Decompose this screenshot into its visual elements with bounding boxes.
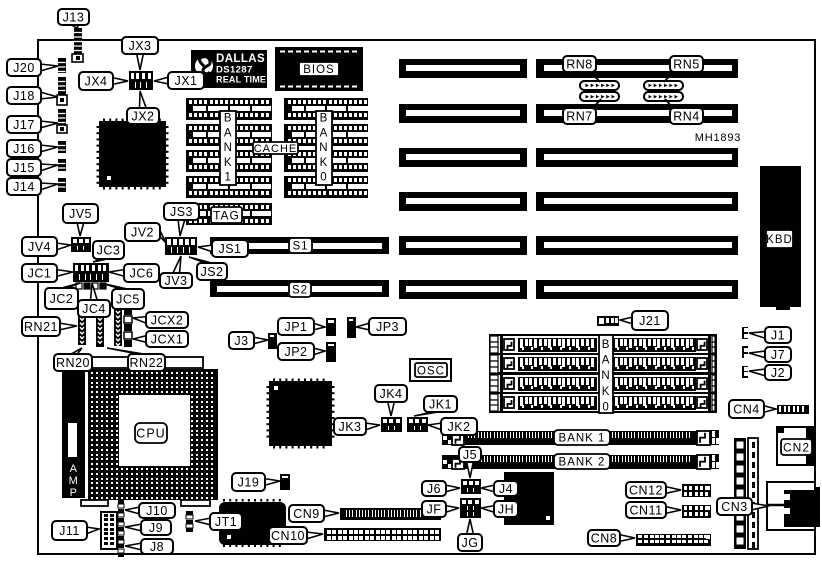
svg-text:RN21: RN21 (24, 320, 58, 334)
svg-text:JT1: JT1 (215, 515, 237, 529)
svg-text:K: K (224, 157, 232, 169)
svg-text:J14: J14 (13, 180, 35, 194)
svg-text:M: M (69, 475, 79, 487)
svg-text:J7: J7 (771, 348, 785, 362)
svg-text:J21: J21 (639, 314, 661, 328)
svg-text:JS3: JS3 (170, 205, 193, 219)
svg-text:RN20: RN20 (56, 356, 90, 370)
svg-text:JV3: JV3 (164, 274, 187, 288)
svg-text:J16: J16 (13, 142, 35, 156)
svg-text:JF: JF (427, 503, 442, 517)
svg-text:JS1: JS1 (218, 242, 241, 256)
svg-text:RN5: RN5 (673, 58, 700, 72)
svg-text:RN8: RN8 (566, 58, 593, 72)
svg-text:REAL TIME: REAL TIME (216, 75, 266, 85)
svg-text:JK2: JK2 (447, 420, 470, 434)
svg-text:CN11: CN11 (629, 504, 662, 518)
svg-text:J19: J19 (238, 476, 260, 490)
svg-text:CN9: CN9 (293, 507, 320, 521)
svg-text:J3: J3 (234, 334, 248, 348)
svg-text:RN4: RN4 (673, 110, 700, 124)
svg-text:S2: S2 (292, 285, 308, 297)
svg-text:N: N (224, 142, 233, 154)
svg-text:A: A (320, 127, 328, 139)
svg-text:0: 0 (602, 401, 609, 413)
svg-text:B: B (602, 339, 610, 351)
svg-text:JC1: JC1 (28, 267, 52, 281)
svg-text:B: B (224, 113, 232, 125)
svg-text:JC5: JC5 (116, 293, 140, 307)
svg-text:JC4: JC4 (82, 302, 106, 316)
svg-text:OSC: OSC (417, 365, 445, 377)
svg-text:JP3: JP3 (376, 320, 399, 334)
svg-text:A: A (602, 355, 610, 367)
svg-text:JV5: JV5 (69, 207, 92, 221)
svg-text:JC3: JC3 (97, 244, 121, 258)
svg-text:A: A (224, 127, 232, 139)
svg-text:BANK 1: BANK 1 (559, 433, 606, 445)
svg-text:J1: J1 (771, 329, 785, 343)
svg-text:J18: J18 (13, 89, 35, 103)
svg-text:JK3: JK3 (338, 420, 361, 434)
svg-text:CN10: CN10 (271, 529, 305, 543)
svg-text:BANK 2: BANK 2 (559, 456, 606, 468)
svg-text:BIOS: BIOS (303, 64, 334, 76)
svg-text:J20: J20 (13, 61, 35, 75)
svg-text:CACHE: CACHE (254, 143, 298, 155)
svg-text:J15: J15 (13, 161, 35, 175)
svg-text:JH: JH (498, 503, 514, 517)
svg-text:JP1: JP1 (284, 320, 307, 334)
svg-text:KBD: KBD (766, 234, 793, 246)
svg-text:J9: J9 (149, 521, 163, 535)
svg-text:RN7: RN7 (566, 110, 593, 124)
svg-text:DALLAS: DALLAS (216, 53, 265, 65)
svg-text:MH1893: MH1893 (695, 132, 741, 144)
svg-text:J8: J8 (150, 540, 164, 554)
svg-text:TAG: TAG (213, 208, 240, 222)
svg-text:RN22: RN22 (130, 356, 164, 370)
svg-text:CN2: CN2 (783, 440, 810, 454)
svg-text:A: A (70, 463, 78, 475)
svg-text:JX2: JX2 (131, 110, 154, 124)
svg-text:B: B (320, 113, 328, 125)
svg-text:JX1: JX1 (174, 74, 197, 88)
svg-text:J13: J13 (63, 11, 85, 25)
svg-text:JV2: JV2 (131, 226, 154, 240)
svg-text:P: P (70, 487, 78, 499)
svg-text:K: K (320, 157, 328, 169)
svg-text:J5: J5 (463, 448, 477, 462)
svg-text:JCX2: JCX2 (151, 314, 184, 328)
svg-text:J4: J4 (499, 482, 513, 496)
svg-text:J17: J17 (13, 118, 35, 132)
svg-text:JV4: JV4 (28, 240, 51, 254)
svg-text:CN3: CN3 (721, 500, 748, 514)
svg-text:JCX1: JCX1 (151, 333, 184, 347)
svg-text:1: 1 (225, 172, 232, 184)
svg-text:CN8: CN8 (591, 532, 618, 546)
svg-text:CN12: CN12 (629, 484, 663, 498)
svg-text:JP2: JP2 (284, 345, 307, 359)
svg-text:0: 0 (320, 172, 327, 184)
svg-text:JS2: JS2 (200, 265, 223, 279)
svg-text:J2: J2 (771, 366, 785, 380)
svg-text:JX4: JX4 (84, 75, 107, 89)
svg-text:S1: S1 (292, 241, 308, 253)
svg-text:J10: J10 (146, 504, 168, 518)
svg-text:JX3: JX3 (128, 39, 151, 53)
svg-text:JK1: JK1 (429, 398, 452, 412)
svg-text:J6: J6 (427, 482, 441, 496)
svg-text:J11: J11 (59, 524, 80, 538)
svg-text:JC2: JC2 (50, 292, 74, 306)
svg-text:N: N (601, 370, 610, 382)
svg-text:JG: JG (462, 536, 479, 550)
svg-text:JC6: JC6 (130, 267, 154, 281)
svg-text:JK4: JK4 (379, 387, 402, 401)
svg-text:CN4: CN4 (733, 403, 760, 417)
svg-text:K: K (602, 386, 610, 398)
svg-text:CPU: CPU (136, 427, 165, 441)
svg-text:N: N (319, 142, 328, 154)
